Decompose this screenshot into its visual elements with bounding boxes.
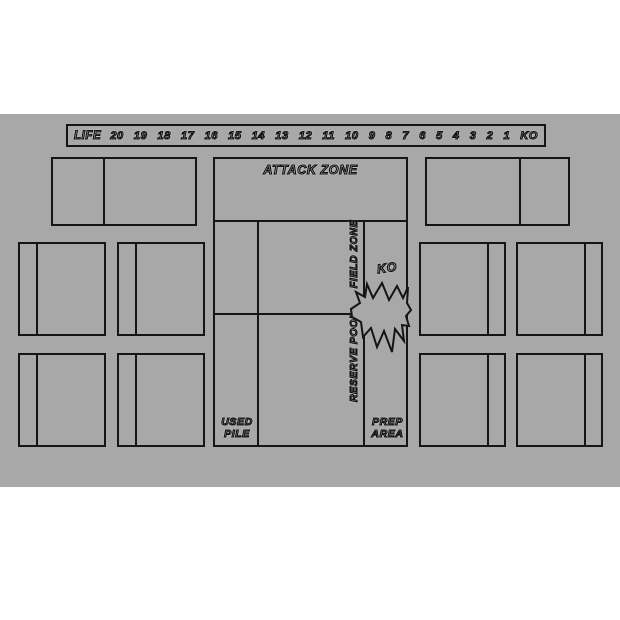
prep-area-label-line1: PREP	[365, 416, 410, 428]
slot-divider	[36, 244, 38, 334]
slot-divider	[584, 244, 586, 334]
life-value-2[interactable]: 2	[487, 130, 494, 142]
life-value-14[interactable]: 14	[252, 130, 265, 142]
card-slot-left-row1-b[interactable]	[117, 242, 205, 336]
life-value-19[interactable]: 19	[134, 130, 147, 142]
used-pile-label: USED PILE	[215, 416, 259, 440]
life-track: LIFE 20 19 18 17 16 15 14 13 12 11 10 9 …	[66, 124, 546, 147]
card-slot-right-row2-a[interactable]	[419, 353, 506, 447]
life-value-8[interactable]: 8	[386, 130, 393, 142]
slot-divider	[36, 355, 38, 445]
card-slot-left-row1-a[interactable]	[18, 242, 106, 336]
life-value-6[interactable]: 6	[419, 130, 426, 142]
life-value-12[interactable]: 12	[299, 130, 312, 142]
card-slot-right-row2-b[interactable]	[516, 353, 603, 447]
used-pile-label-line1: USED	[215, 416, 259, 428]
life-value-3[interactable]: 3	[470, 130, 477, 142]
ko-label: KO	[376, 260, 398, 277]
card-slot-top-left-double[interactable]	[51, 157, 197, 226]
slot-divider	[487, 355, 489, 445]
left-column-top-area[interactable]	[215, 222, 257, 313]
life-value-4[interactable]: 4	[453, 130, 460, 142]
card-slot-left-row2-a[interactable]	[18, 353, 106, 447]
life-value-1[interactable]: 1	[503, 130, 510, 142]
slot-divider	[135, 355, 137, 445]
life-track-values: 20 19 18 17 16 15 14 13 12 11 10 9 8 7 6…	[110, 130, 538, 142]
used-pile-label-line2: PILE	[215, 428, 259, 440]
card-slot-right-row1-a[interactable]	[419, 242, 506, 336]
attack-zone-label: ATTACK ZONE	[215, 163, 406, 177]
life-value-11[interactable]: 11	[322, 130, 335, 142]
life-value-15[interactable]: 15	[228, 130, 241, 142]
life-value-5[interactable]: 5	[436, 130, 443, 142]
slot-divider	[487, 244, 489, 334]
card-slot-top-right-double[interactable]	[425, 157, 570, 226]
prep-area-label-line2: AREA	[365, 428, 410, 440]
slot-divider	[135, 244, 137, 334]
life-value-ko[interactable]: KO	[520, 130, 538, 142]
card-slot-right-row1-b[interactable]	[516, 242, 603, 336]
explosion-burst-icon	[348, 278, 414, 356]
card-slot-left-row2-b[interactable]	[117, 353, 205, 447]
slot-divider	[519, 159, 521, 224]
life-value-20[interactable]: 20	[110, 130, 123, 142]
life-value-16[interactable]: 16	[205, 130, 218, 142]
life-value-7[interactable]: 7	[402, 130, 409, 142]
life-value-13[interactable]: 13	[275, 130, 288, 142]
life-track-label: LIFE	[74, 130, 101, 142]
life-value-18[interactable]: 18	[157, 130, 170, 142]
life-value-9[interactable]: 9	[369, 130, 376, 142]
life-value-10[interactable]: 10	[345, 130, 358, 142]
prep-area-label: PREP AREA	[365, 416, 410, 440]
playmat: LIFE 20 19 18 17 16 15 14 13 12 11 10 9 …	[0, 114, 620, 487]
slot-divider	[103, 159, 105, 224]
slot-divider	[584, 355, 586, 445]
life-value-17[interactable]: 17	[181, 130, 194, 142]
